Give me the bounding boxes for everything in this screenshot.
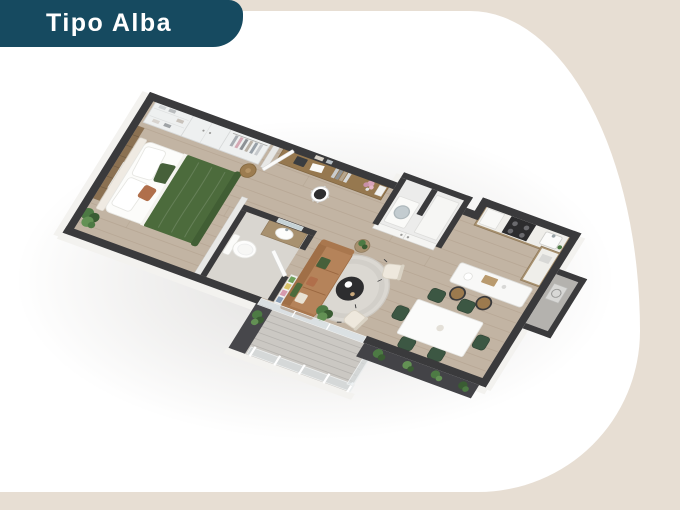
flyer-canvas: Tipo Alba: [0, 0, 680, 510]
type-badge-label: Tipo Alba: [46, 11, 172, 36]
type-badge: Tipo Alba: [0, 0, 243, 47]
floorplan-svg: [0, 0, 680, 510]
